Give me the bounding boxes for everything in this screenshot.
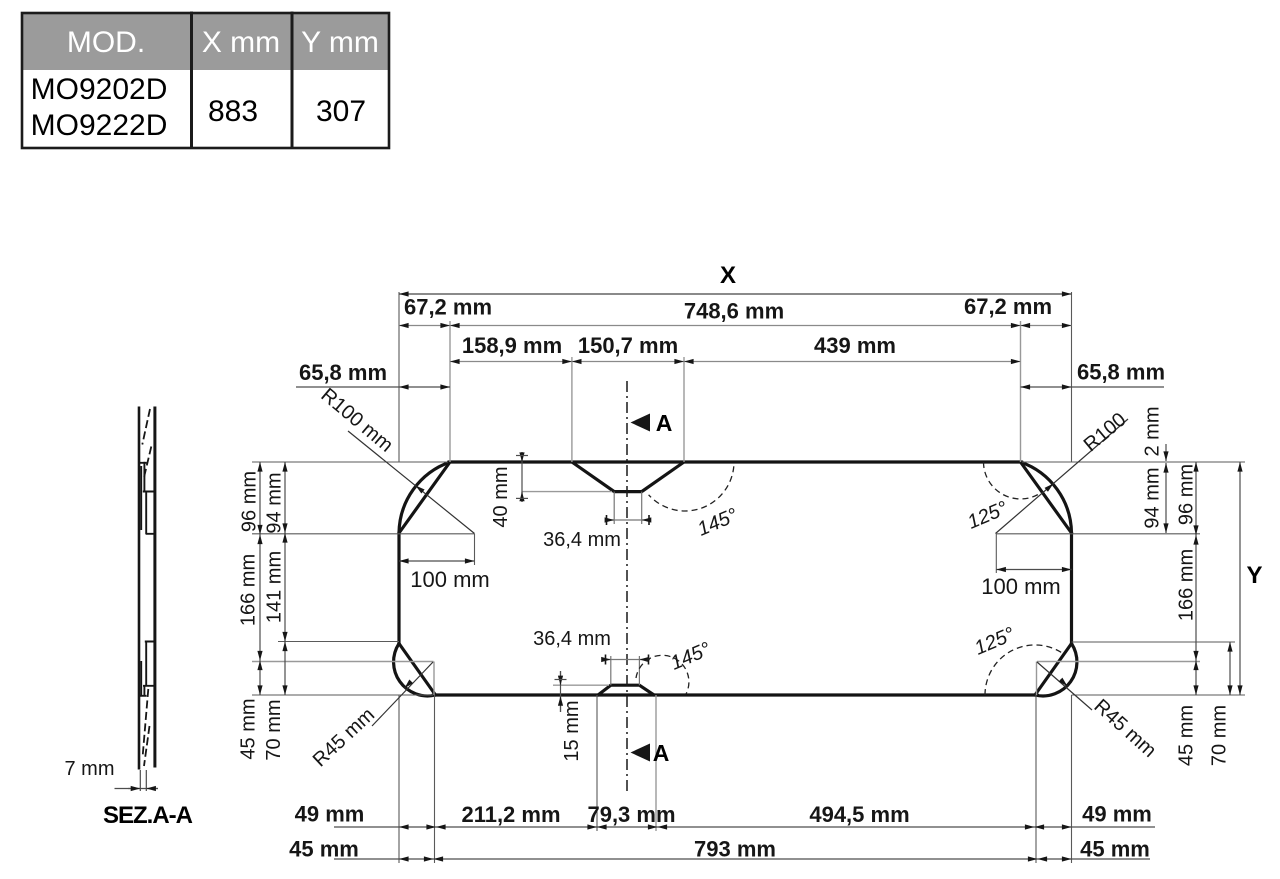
svg-text:145°: 145° [694,504,741,540]
svg-text:141 mm: 141 mm [264,551,286,623]
svg-text:A: A [656,410,673,436]
svg-text:R100 mm: R100 mm [317,384,398,457]
svg-text:307: 307 [316,95,366,128]
svg-text:100 mm: 100 mm [410,567,489,592]
svg-text:439 mm: 439 mm [814,333,896,358]
svg-text:R100: R100 [1080,409,1131,457]
svg-text:94 mm: 94 mm [1142,467,1164,528]
svg-text:70 mm: 70 mm [263,699,285,760]
svg-text:36,4 mm: 36,4 mm [543,529,621,551]
svg-text:125°: 125° [971,623,1018,659]
svg-text:158,9 mm: 158,9 mm [462,333,562,358]
svg-text:40 mm: 40 mm [490,466,512,527]
svg-text:94 mm: 94 mm [264,472,286,533]
svg-text:100 mm: 100 mm [981,574,1060,599]
svg-text:96 mm: 96 mm [239,471,261,532]
svg-text:45 mm: 45 mm [1080,837,1150,862]
svg-text:X mm: X mm [202,26,280,59]
svg-text:883: 883 [208,95,258,128]
svg-text:15 mm: 15 mm [561,700,583,761]
svg-text:7 mm: 7 mm [65,758,115,780]
svg-text:MO9222D: MO9222D [31,109,168,142]
svg-text:166 mm: 166 mm [1176,549,1198,621]
svg-text:X: X [720,262,736,289]
svg-text:211,2 mm: 211,2 mm [461,802,560,827]
svg-text:MO9202D: MO9202D [31,73,168,106]
svg-text:65,8 mm: 65,8 mm [299,360,387,385]
svg-text:2 mm: 2 mm [1142,407,1164,457]
svg-text:45 mm: 45 mm [238,698,260,759]
svg-text:67,2 mm: 67,2 mm [404,295,492,320]
svg-text:49 mm: 49 mm [295,802,365,827]
svg-text:79,3 mm: 79,3 mm [587,802,675,827]
svg-text:SEZ.A-A: SEZ.A-A [103,802,193,829]
svg-text:748,6 mm: 748,6 mm [684,299,784,324]
svg-text:A: A [653,740,670,766]
svg-text:MOD.: MOD. [67,26,145,59]
svg-text:65,8 mm: 65,8 mm [1077,360,1165,385]
svg-text:45 mm: 45 mm [1176,705,1198,766]
svg-text:67,2 mm: 67,2 mm [964,294,1052,319]
svg-text:49 mm: 49 mm [1082,802,1152,827]
svg-text:125°: 125° [964,497,1011,533]
svg-text:R45 mm: R45 mm [309,704,379,772]
svg-text:Y mm: Y mm [301,26,379,59]
svg-text:145°: 145° [667,638,714,674]
svg-text:Y: Y [1246,562,1262,589]
svg-text:793 mm: 793 mm [694,837,776,862]
svg-text:166 mm: 166 mm [238,554,260,626]
svg-text:36,4 mm: 36,4 mm [533,628,611,650]
svg-text:96 mm: 96 mm [1176,464,1198,525]
svg-text:150,7 mm: 150,7 mm [578,333,678,358]
svg-text:R45 mm: R45 mm [1090,695,1161,762]
svg-text:70 mm: 70 mm [1209,705,1231,766]
svg-text:494,5 mm: 494,5 mm [809,802,909,827]
svg-text:45 mm: 45 mm [289,837,359,862]
